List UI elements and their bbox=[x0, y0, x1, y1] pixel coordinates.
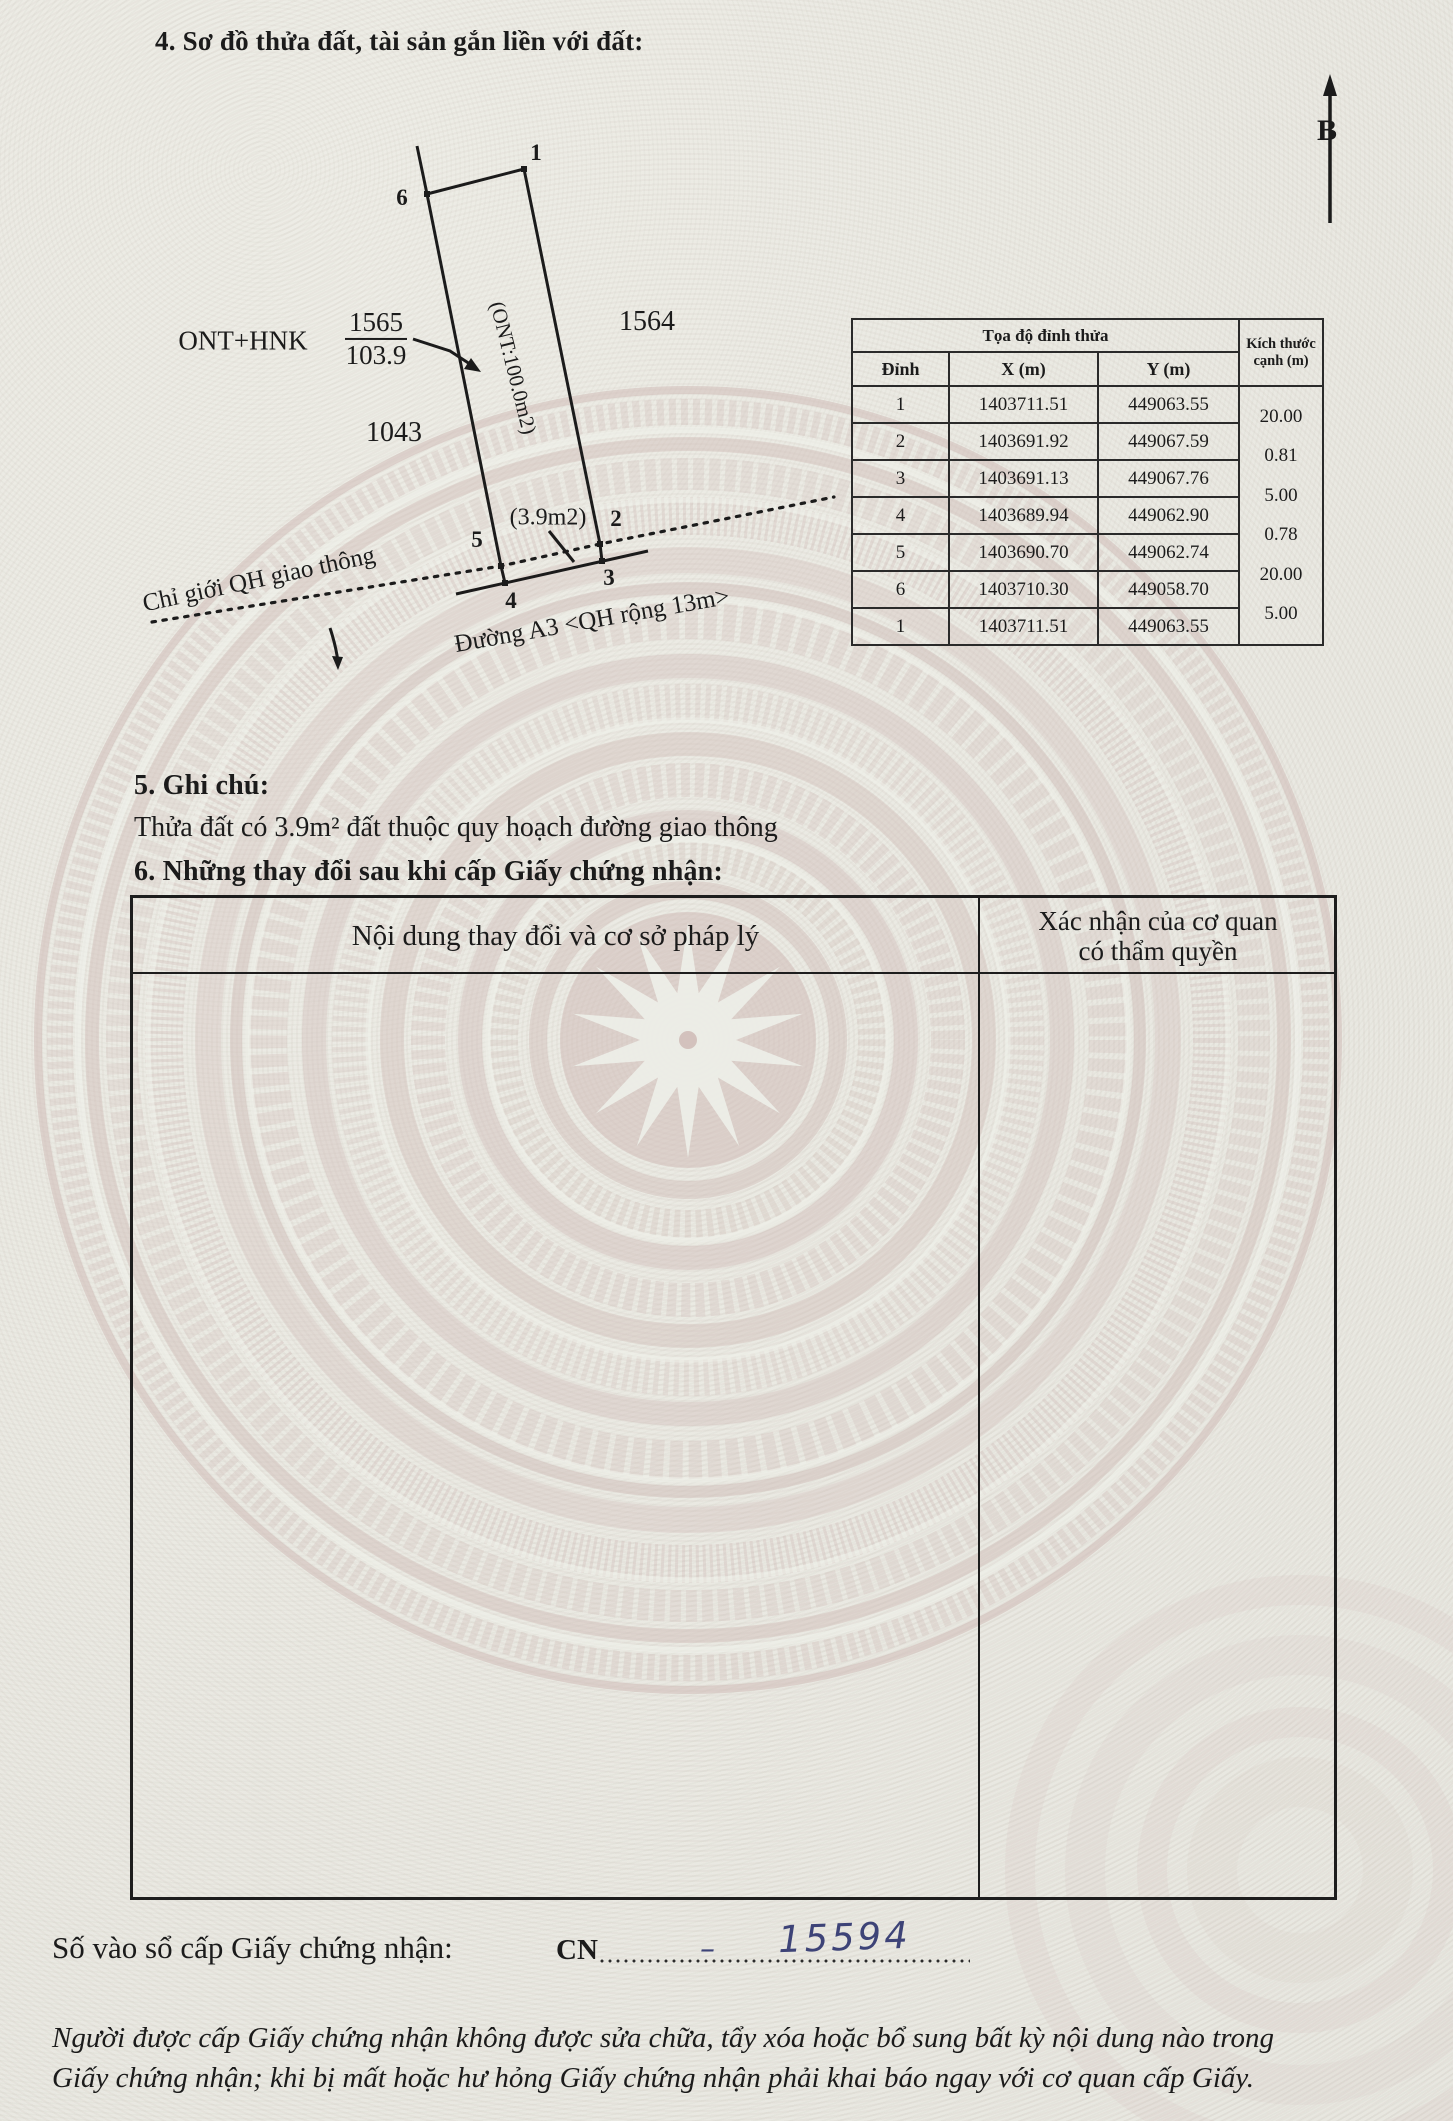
edge-value: 20.00 bbox=[1240, 406, 1322, 428]
vertex-label-3: 3 bbox=[603, 565, 615, 591]
footer-notice: Người được cấp Giấy chứng nhận không đượ… bbox=[52, 2018, 1417, 2098]
edge-value: 0.81 bbox=[1240, 445, 1322, 467]
vertex-label-1: 1 bbox=[530, 140, 542, 166]
vertex-label-5: 5 bbox=[471, 527, 483, 553]
parcel-number: 1565 bbox=[345, 307, 407, 340]
neighbor-parcel-1043: 1043 bbox=[366, 417, 422, 449]
coord-row: 1 1403711.51 449063.55 20.00 0.81 5.00 0… bbox=[852, 386, 1323, 423]
north-arrow-icon bbox=[1323, 74, 1337, 223]
col-x: X (m) bbox=[949, 352, 1098, 386]
col-vertex: Đỉnh bbox=[852, 352, 949, 386]
serial-number-handwritten: 15594 bbox=[777, 1914, 911, 1962]
north-letter: B bbox=[1317, 114, 1337, 148]
changes-col-left-header: Nội dung thay đổi và cơ sở pháp lý bbox=[133, 898, 978, 974]
vertex-label-2: 2 bbox=[610, 506, 622, 532]
planning-boundary-label: Chỉ giới QH giao thông bbox=[140, 542, 377, 619]
vertex-label-4: 4 bbox=[505, 588, 517, 614]
edge-value: 5.00 bbox=[1240, 603, 1322, 625]
section6-title: 6. Những thay đổi sau khi cấp Giấy chứng… bbox=[134, 856, 723, 888]
coord-table-title: Tọa độ đỉnh thửa bbox=[852, 319, 1239, 352]
changes-table: Nội dung thay đổi và cơ sở pháp lý Xác n… bbox=[130, 895, 1337, 1900]
edge-value: 20.00 bbox=[1240, 564, 1322, 586]
parcel-inner-area-label: (ONT:100.0m2) bbox=[484, 299, 541, 437]
changes-col-right-header: Xác nhận của cơ quan có thẩm quyền bbox=[978, 898, 1338, 974]
edge-value: 5.00 bbox=[1240, 485, 1322, 507]
road-label: Đường A3 <QH rộng 13m> bbox=[452, 583, 731, 659]
changes-table-divider bbox=[978, 898, 980, 1897]
neighbor-parcel-1564: 1564 bbox=[619, 306, 675, 338]
coordinate-table: Tọa độ đỉnh thửa Kích thước cạnh (m) Đỉn… bbox=[851, 318, 1324, 646]
section5-note: Thửa đất có 3.9m² đất thuộc quy hoạch đư… bbox=[134, 812, 778, 844]
parcel-number-area-fraction: 1565 103.9 bbox=[345, 307, 407, 371]
section4-title: 4. Sơ đồ thửa đất, tài sản gắn liền với … bbox=[155, 26, 644, 57]
edge-values-cell: 20.00 0.81 5.00 0.78 20.00 5.00 bbox=[1239, 386, 1323, 645]
serial-prefix: CN bbox=[556, 1934, 598, 1967]
notice-line-1: Người được cấp Giấy chứng nhận không đượ… bbox=[52, 2018, 1417, 2058]
notice-line-2: Giấy chứng nhận; khi bị mất hoặc hư hỏng… bbox=[52, 2058, 1417, 2098]
strip-area-label: (3.9m2) bbox=[510, 505, 587, 532]
edge-column-header: Kích thước cạnh (m) bbox=[1239, 319, 1323, 386]
certificate-page: 4. Sơ đồ thửa đất, tài sản gắn liền với … bbox=[0, 0, 1453, 2121]
serial-dash: – bbox=[700, 1932, 718, 1967]
vertex-label-6: 6 bbox=[396, 185, 408, 211]
serial-label: Số vào sổ cấp Giấy chứng nhận: bbox=[52, 1930, 453, 1966]
parcel-area: 103.9 bbox=[345, 340, 407, 371]
edge-value: 0.78 bbox=[1240, 524, 1322, 546]
col-y: Y (m) bbox=[1098, 352, 1239, 386]
section5-title: 5. Ghi chú: bbox=[134, 770, 269, 802]
planning-boundary-dotted-line bbox=[152, 497, 834, 622]
land-use-code: ONT+HNK bbox=[178, 326, 307, 357]
